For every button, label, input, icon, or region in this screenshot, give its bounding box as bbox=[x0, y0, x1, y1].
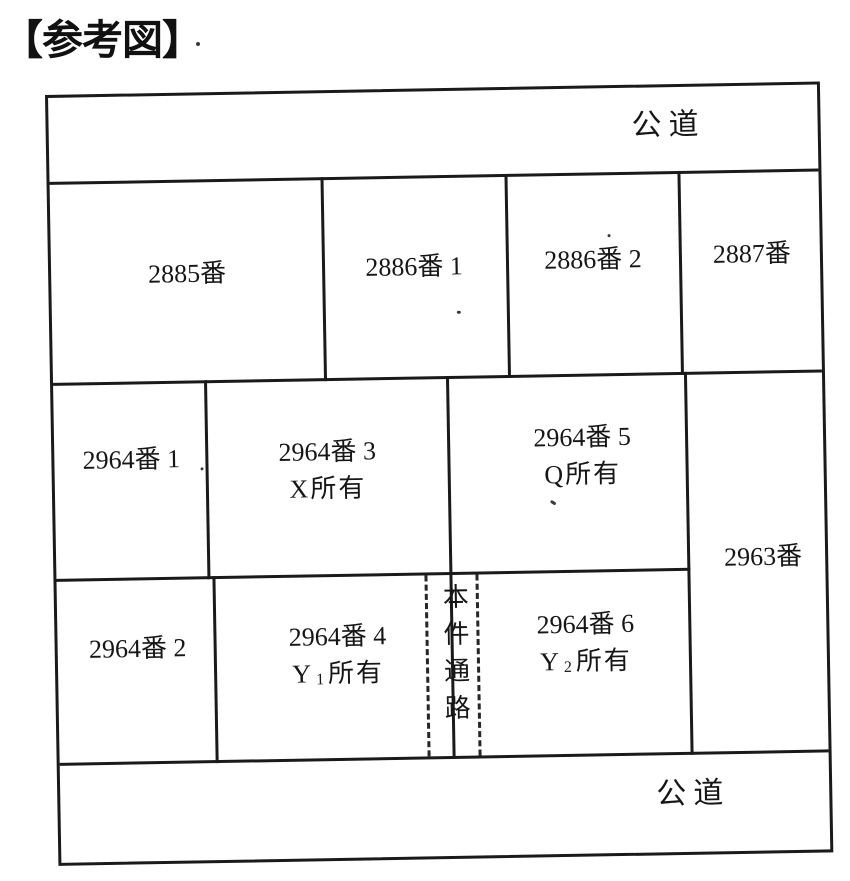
scan-speck bbox=[196, 42, 200, 46]
parcel-2887: 2887番 bbox=[713, 235, 792, 273]
scan-speck bbox=[608, 234, 611, 237]
parcel-2963: 2963番 bbox=[724, 537, 803, 575]
boundary-2964-2-4 bbox=[212, 576, 218, 763]
boundary-2964-1-3 bbox=[204, 380, 210, 579]
owner-y1-subscript: 1 bbox=[316, 671, 324, 688]
owner-y1-suffix: 所有 bbox=[328, 658, 385, 688]
owner-y2: Y bbox=[540, 647, 559, 676]
parcel-2964-4: 2964番 4 Y1所有 bbox=[288, 617, 387, 699]
parcel-2885: 2885番 bbox=[148, 254, 227, 292]
parcel-2886-2: 2886番 2 bbox=[544, 240, 642, 279]
parcel-2964-2: 2964番 2 bbox=[89, 629, 187, 668]
scan-speck bbox=[550, 500, 557, 506]
scan-speck bbox=[201, 467, 204, 470]
parcel-2964-3-number: 2964番 3 bbox=[278, 432, 376, 471]
owner-q-suffix: 所有 bbox=[565, 459, 622, 489]
boundary-2886-1-2 bbox=[504, 174, 511, 378]
owner-y2-subscript: 2 bbox=[564, 659, 572, 676]
parcel-2964-6-number: 2964番 6 bbox=[536, 605, 634, 644]
owner-x: X bbox=[289, 474, 308, 503]
road-bottom-label: 公道 bbox=[656, 775, 731, 813]
scan-speck bbox=[457, 311, 461, 314]
parcel-2964-6: 2964番 6 Y2所有 bbox=[536, 605, 635, 687]
parcel-2964-5: 2964番 5 Q所有 bbox=[533, 418, 632, 494]
owner-y1: Y bbox=[292, 659, 311, 688]
boundary-road-top bbox=[50, 169, 819, 185]
owner-q: Q bbox=[544, 460, 563, 489]
parcel-2964-3: 2964番 3 X所有 bbox=[278, 432, 377, 508]
parcel-2964-5-number: 2964番 5 bbox=[533, 418, 631, 457]
road-top-label: 公道 bbox=[631, 106, 706, 144]
parcel-2964-4-owner: Y1所有 bbox=[289, 654, 387, 699]
boundary-2886-2887 bbox=[677, 171, 684, 375]
passage-dashed-left bbox=[424, 575, 430, 756]
parcel-2964-1: 2964番 1 bbox=[82, 440, 180, 479]
parcel-diagram: 公道 公道 2885番 2886番 1 2886番 2 2887番 2964番 … bbox=[45, 81, 833, 865]
boundary-2964-2963 bbox=[684, 372, 694, 755]
owner-x-suffix: 所有 bbox=[310, 473, 367, 503]
passage-dashed-right bbox=[475, 575, 481, 756]
parcel-2886-1: 2886番 1 bbox=[365, 247, 463, 286]
boundary-2885-2886 bbox=[320, 177, 327, 381]
owner-y2-suffix: 所有 bbox=[576, 646, 633, 676]
parcel-2964-6-owner: Y2所有 bbox=[537, 642, 635, 687]
parcel-2964-3-owner: X所有 bbox=[279, 469, 377, 508]
boundary-row-middle bbox=[56, 568, 690, 582]
scanned-page: { "page_title": "【参考図】", "colors": { "in… bbox=[0, 0, 850, 881]
parcel-2964-4-number: 2964番 4 bbox=[288, 617, 386, 656]
boundary-road-bottom bbox=[60, 749, 829, 765]
page-title: 【参考図】 bbox=[2, 6, 202, 66]
parcel-2964-5-owner: Q所有 bbox=[534, 455, 632, 494]
passage-label: 本件通路 bbox=[435, 583, 475, 732]
boundary-row-upper bbox=[53, 369, 822, 385]
